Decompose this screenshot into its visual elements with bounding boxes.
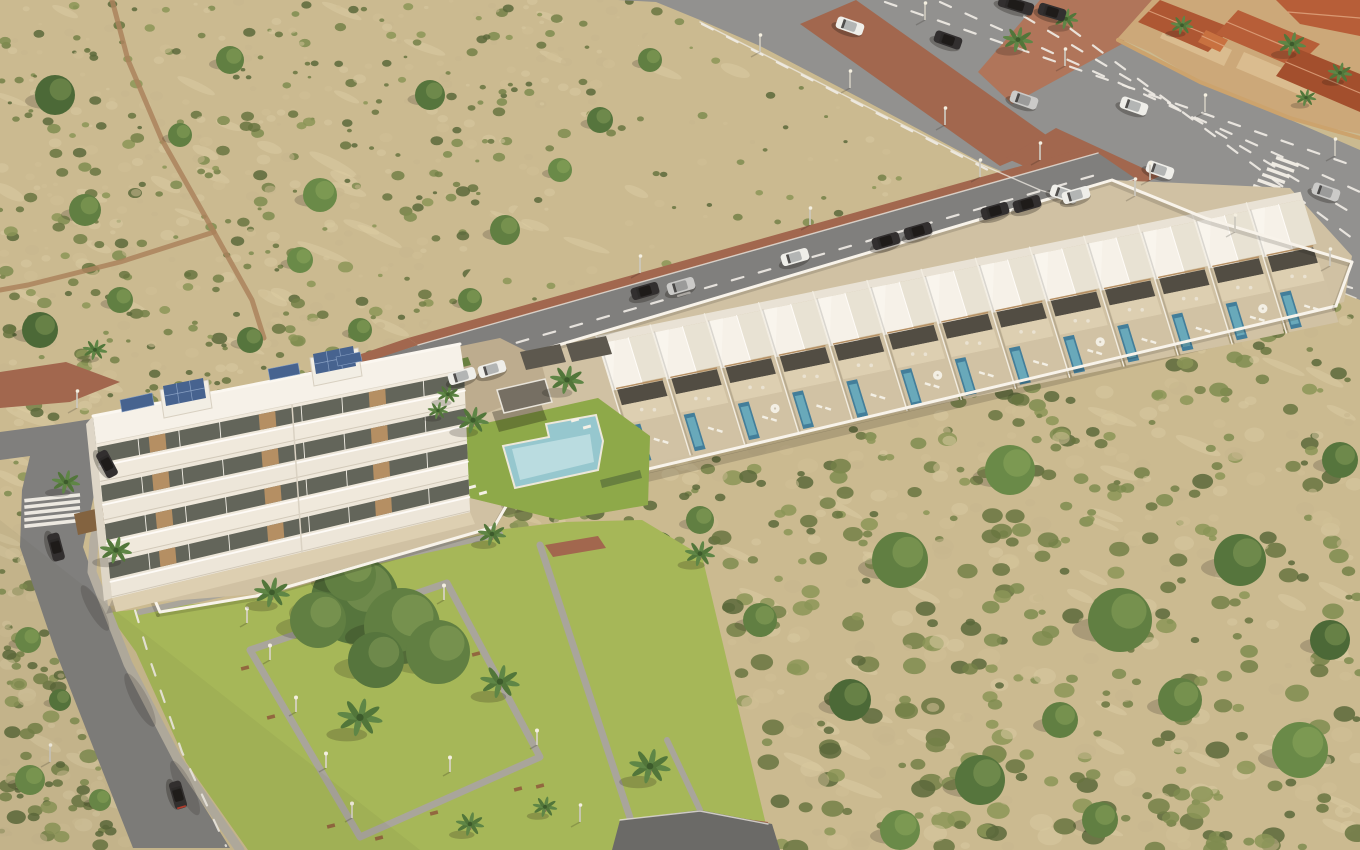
aerial-render-stage [0,0,1360,850]
aerial-render-canvas [0,0,1360,850]
warm-light-overlay [0,0,1360,850]
